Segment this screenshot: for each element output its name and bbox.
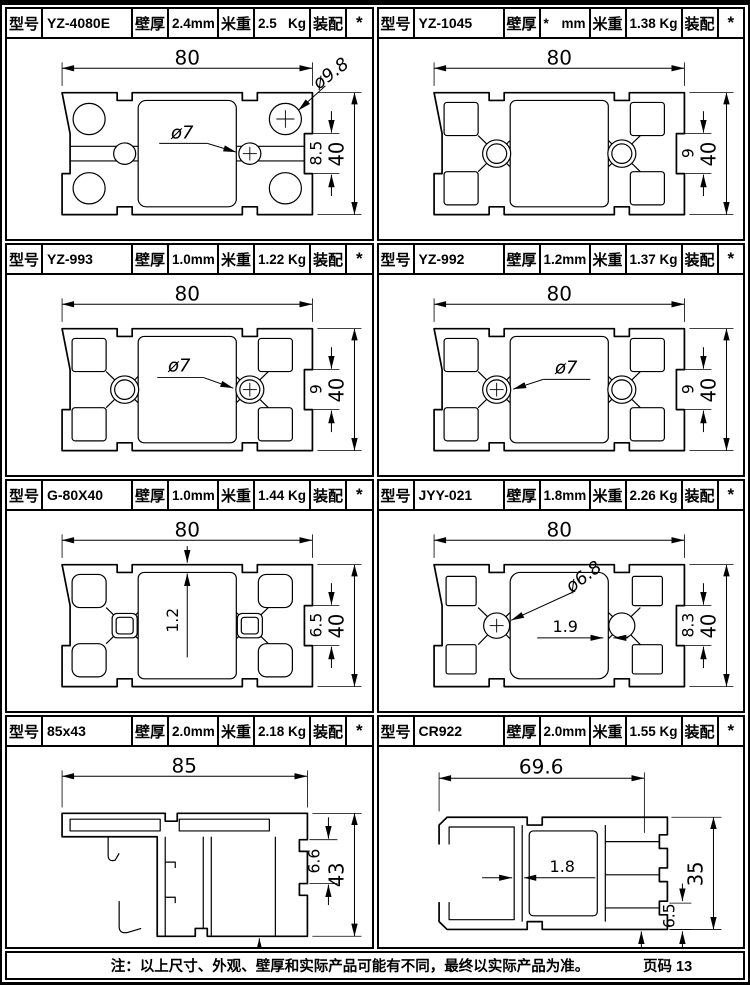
spec-header: 型号 YZ-992 壁厚 1.2mm 米重 1.37Kg 装配 * xyxy=(379,245,744,275)
weight-unit: Kg xyxy=(288,488,306,503)
model-label: 型号 xyxy=(379,9,415,37)
dim-slot: 9 xyxy=(306,384,325,394)
assembly-value: * xyxy=(347,9,372,37)
dim-width: 80 xyxy=(175,47,200,70)
dim-wall-callout: 1.2 xyxy=(163,608,182,633)
model-value: YZ-993 xyxy=(43,245,133,273)
dim-width: 80 xyxy=(546,47,571,70)
assembly-label: 装配 xyxy=(311,9,347,37)
weight-label: 米重 xyxy=(591,245,627,273)
wall-cell: 2.0mm xyxy=(169,717,219,745)
dim-slot: 8.5 xyxy=(306,141,325,166)
weight-value: 1.44 xyxy=(258,488,284,503)
weight-label: 米重 xyxy=(591,9,627,37)
weight-value: 2.26 xyxy=(630,488,656,503)
weight-unit: Kg xyxy=(660,724,678,739)
wall-label: 壁厚 xyxy=(505,717,541,745)
assembly-label: 装配 xyxy=(683,245,719,273)
assembly-label: 装配 xyxy=(311,481,347,509)
dim-slot: 8.3 xyxy=(678,613,697,638)
weight-unit: Kg xyxy=(660,488,678,503)
weight-cell: 1.37Kg xyxy=(627,245,683,273)
dim-width: 69.6 xyxy=(518,756,563,779)
dim-width: 80 xyxy=(546,283,571,306)
model-label: 型号 xyxy=(379,481,415,509)
model-value: YZ-4080E xyxy=(43,9,133,37)
weight-value: 2.5 xyxy=(258,16,277,31)
profile-cell-yz1045: 型号 YZ-1045 壁厚 *mm 米重 1.38Kg 装配 * xyxy=(377,7,746,241)
profile-drawing-yz4080e: 80 40 8.5 ø9.8 ø7 xyxy=(7,39,372,239)
wall-label: 壁厚 xyxy=(133,481,169,509)
model-label: 型号 xyxy=(7,9,43,37)
dim-height: 40 xyxy=(697,614,720,639)
model-value: YZ-992 xyxy=(415,245,505,273)
footer-note: 注：以上尺寸、外观、壁厚和实际产品可能有不同，最终以实际产品为准。 xyxy=(7,955,643,976)
weight-unit: Kg xyxy=(288,252,306,267)
dim-slot: 6.5 xyxy=(659,903,678,928)
wall-unit: mm xyxy=(191,252,215,267)
wall-unit: mm xyxy=(562,488,586,503)
profile-drawing-yz993: 80 40 9 ø7 xyxy=(7,275,372,475)
dim-height: 40 xyxy=(697,378,720,403)
assembly-label: 装配 xyxy=(311,245,347,273)
spec-header: 型号 CR922 壁厚 2.0mm 米重 1.55Kg 装配 * xyxy=(379,717,744,747)
cad-drawing: 80 40 8.5 ø9.8 ø7 xyxy=(7,39,372,239)
profile-drawing-jyy021: 80 40 8.3 ø6.8 1.9 xyxy=(379,511,744,711)
dim-slot: 6.6 xyxy=(304,849,323,874)
wall-label: 壁厚 xyxy=(505,9,541,37)
profile-row-1: 型号 YZ-4080E 壁厚 2.4mm 米重 2.5Kg 装配 * xyxy=(5,7,745,241)
wall-cell: 2.0mm xyxy=(541,717,591,745)
wall-unit: mm xyxy=(191,16,215,31)
cad-drawing: 69.6 35 6.5 1.8 xyxy=(379,747,744,947)
spec-header: 型号 YZ-1045 壁厚 *mm 米重 1.38Kg 装配 * xyxy=(379,9,744,39)
weight-cell: 2.18Kg xyxy=(255,717,311,745)
weight-unit: Kg xyxy=(660,16,678,31)
assembly-value: * xyxy=(719,481,744,509)
weight-label: 米重 xyxy=(591,717,627,745)
wall-cell: 1.2mm xyxy=(541,245,591,273)
weight-value: 1.22 xyxy=(258,252,284,267)
profile-cell-g80x40: 型号 G-80X40 壁厚 1.0mm 米重 1.44Kg 装配 * xyxy=(5,479,374,713)
assembly-value: * xyxy=(347,245,372,273)
wall-value: * xyxy=(544,16,549,31)
profile-row-2: 型号 YZ-993 壁厚 1.0mm 米重 1.22Kg 装配 * xyxy=(5,243,745,477)
dim-center-hole: ø7 xyxy=(167,356,191,377)
assembly-label: 装配 xyxy=(683,9,719,37)
dim-height: 40 xyxy=(697,142,720,167)
weight-unit: Kg xyxy=(660,252,678,267)
wall-unit: mm xyxy=(191,724,215,739)
assembly-value: * xyxy=(719,245,744,273)
assembly-value: * xyxy=(719,9,744,37)
dim-height: 40 xyxy=(325,142,348,167)
wall-value: 2.0 xyxy=(544,724,563,739)
wall-cell: 1.0mm xyxy=(169,481,219,509)
wall-unit: mm xyxy=(562,724,586,739)
cad-drawing: 80 40 6.5 1.2 xyxy=(7,511,372,711)
wall-unit: mm xyxy=(562,252,586,267)
model-label: 型号 xyxy=(379,717,415,745)
dim-slot: 9 xyxy=(678,148,697,158)
wall-label: 壁厚 xyxy=(505,481,541,509)
weight-label: 米重 xyxy=(219,9,255,37)
model-value: CR922 xyxy=(415,717,505,745)
dim-center-hole: ø6.8 xyxy=(560,557,605,598)
profile-drawing-g80x40: 80 40 6.5 1.2 xyxy=(7,511,372,711)
dim-height: 35 xyxy=(684,861,707,886)
profile-drawing-yz992: 80 40 9 ø7 xyxy=(379,275,744,475)
weight-value: 1.38 xyxy=(630,16,656,31)
model-value: YZ-1045 xyxy=(415,9,505,37)
dim-slot: 6.5 xyxy=(306,613,325,638)
weight-label: 米重 xyxy=(219,481,255,509)
model-value: G-80X40 xyxy=(43,481,133,509)
wall-cell: *mm xyxy=(541,9,591,37)
dim-width: 85 xyxy=(172,755,197,778)
profile-cell-85x43: 型号 85x43 壁厚 2.0mm 米重 2.18Kg 装配 * xyxy=(5,715,374,949)
weight-value: 1.55 xyxy=(630,724,656,739)
cad-drawing: 80 40 9 xyxy=(379,39,744,239)
spec-header: 型号 G-80X40 壁厚 1.0mm 米重 1.44Kg 装配 * xyxy=(7,481,372,511)
dim-center-hole: ø7 xyxy=(170,123,194,144)
weight-cell: 1.44Kg xyxy=(255,481,311,509)
spec-header: 型号 JYY-021 壁厚 1.8mm 米重 2.26Kg 装配 * xyxy=(379,481,744,511)
wall-value: 2.4 xyxy=(172,16,191,31)
assembly-value: * xyxy=(347,717,372,745)
wall-cell: 2.4mm xyxy=(169,9,219,37)
dim-height: 40 xyxy=(325,378,348,403)
weight-label: 米重 xyxy=(219,717,255,745)
profile-row-3: 型号 G-80X40 壁厚 1.0mm 米重 1.44Kg 装配 * xyxy=(5,479,745,713)
wall-value: 2.0 xyxy=(172,724,191,739)
dim-width: 80 xyxy=(546,519,571,542)
profile-cell-yz4080e: 型号 YZ-4080E 壁厚 2.4mm 米重 2.5Kg 装配 * xyxy=(5,7,374,241)
profile-drawing-cr922: 69.6 35 6.5 1.8 xyxy=(379,747,744,947)
dim-slot: 9 xyxy=(678,384,697,394)
wall-value: 1.0 xyxy=(172,252,191,267)
wall-unit: mm xyxy=(191,488,215,503)
model-value: 85x43 xyxy=(43,717,133,745)
spec-header: 型号 YZ-993 壁厚 1.0mm 米重 1.22Kg 装配 * xyxy=(7,245,372,275)
dim-height: 40 xyxy=(325,614,348,639)
dim-corner-hole: ø9.8 xyxy=(308,54,353,95)
wall-label: 壁厚 xyxy=(133,245,169,273)
weight-cell: 2.26Kg xyxy=(627,481,683,509)
dim-wall-callout: 1.9 xyxy=(552,617,577,636)
model-label: 型号 xyxy=(379,245,415,273)
wall-value: 1.2 xyxy=(544,252,563,267)
wall-value: 1.0 xyxy=(172,488,191,503)
page-number: 页码 13 xyxy=(643,955,743,976)
cad-drawing: 80 40 9 ø7 xyxy=(379,275,744,475)
wall-cell: 1.8mm xyxy=(541,481,591,509)
wall-value: 1.8 xyxy=(544,488,563,503)
weight-value: 2.18 xyxy=(258,724,284,739)
weight-label: 米重 xyxy=(591,481,627,509)
assembly-label: 装配 xyxy=(311,717,347,745)
weight-value: 1.37 xyxy=(630,252,656,267)
assembly-label: 装配 xyxy=(683,717,719,745)
model-label: 型号 xyxy=(7,245,43,273)
wall-label: 壁厚 xyxy=(133,717,169,745)
wall-unit: mm xyxy=(561,16,585,31)
dim-wall-callout: 1.8 xyxy=(549,857,574,876)
page-footer: 注：以上尺寸、外观、壁厚和实际产品可能有不同，最终以实际产品为准。 页码 13 xyxy=(5,951,745,980)
weight-cell: 1.55Kg xyxy=(627,717,683,745)
assembly-label: 装配 xyxy=(683,481,719,509)
profile-row-4: 型号 85x43 壁厚 2.0mm 米重 2.18Kg 装配 * xyxy=(5,715,745,949)
weight-cell: 2.5Kg xyxy=(255,9,311,37)
assembly-value: * xyxy=(719,717,744,745)
weight-cell: 1.38Kg xyxy=(627,9,683,37)
weight-cell: 1.22Kg xyxy=(255,245,311,273)
weight-unit: Kg xyxy=(288,16,306,31)
dim-center-hole: ø7 xyxy=(553,358,577,379)
spec-header: 型号 85x43 壁厚 2.0mm 米重 2.18Kg 装配 * xyxy=(7,717,372,747)
profile-drawing-85x43: 85 43 6.6 xyxy=(7,747,372,947)
weight-label: 米重 xyxy=(219,245,255,273)
model-label: 型号 xyxy=(7,717,43,745)
profile-drawing-yz1045: 80 40 9 xyxy=(379,39,744,239)
cad-drawing: 80 40 9 ø7 xyxy=(7,275,372,475)
catalog-page: 型号 YZ-4080E 壁厚 2.4mm 米重 2.5Kg 装配 * xyxy=(0,0,750,985)
cad-drawing: 80 40 8.3 ø6.8 1.9 xyxy=(379,511,744,711)
wall-label: 壁厚 xyxy=(505,245,541,273)
profile-cell-yz992: 型号 YZ-992 壁厚 1.2mm 米重 1.37Kg 装配 * xyxy=(377,243,746,477)
weight-unit: Kg xyxy=(288,724,306,739)
model-label: 型号 xyxy=(7,481,43,509)
wall-cell: 1.0mm xyxy=(169,245,219,273)
dim-width: 80 xyxy=(175,283,200,306)
cad-drawing: 85 43 6.6 xyxy=(7,747,372,947)
wall-label: 壁厚 xyxy=(133,9,169,37)
profile-cell-cr922: 型号 CR922 壁厚 2.0mm 米重 1.55Kg 装配 * xyxy=(377,715,746,949)
profile-cell-yz993: 型号 YZ-993 壁厚 1.0mm 米重 1.22Kg 装配 * xyxy=(5,243,374,477)
assembly-value: * xyxy=(347,481,372,509)
profile-cell-jyy021: 型号 JYY-021 壁厚 1.8mm 米重 2.26Kg 装配 * xyxy=(377,479,746,713)
dim-width: 80 xyxy=(175,519,200,542)
spec-header: 型号 YZ-4080E 壁厚 2.4mm 米重 2.5Kg 装配 * xyxy=(7,9,372,39)
model-value: JYY-021 xyxy=(415,481,505,509)
